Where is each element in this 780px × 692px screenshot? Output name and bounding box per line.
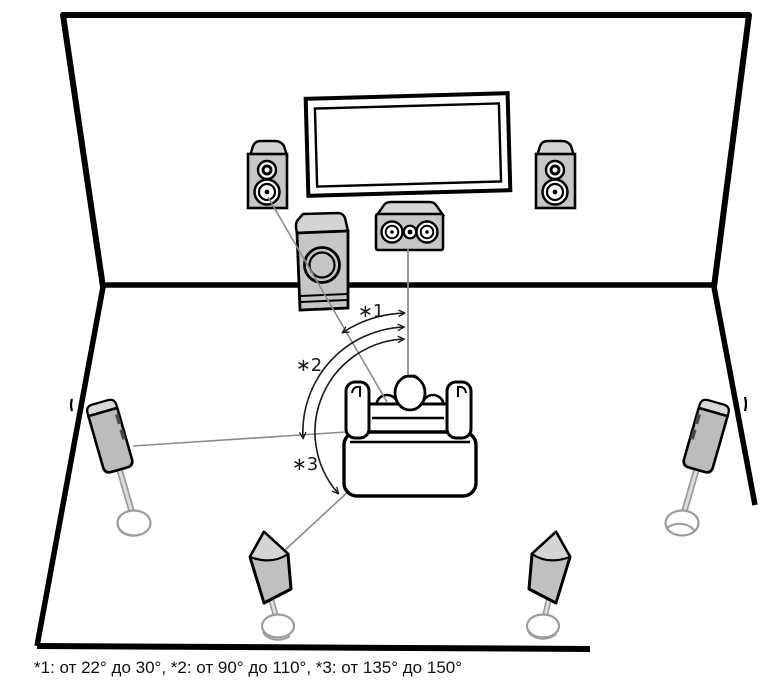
angle-label-1: ∗1 xyxy=(358,301,385,322)
subwoofer xyxy=(296,213,348,310)
floor-bottom-edge xyxy=(37,646,590,649)
stand-pole-highlight xyxy=(683,468,697,516)
surround-right-speaker xyxy=(666,398,731,535)
wall-tick-right xyxy=(745,397,746,411)
stand-base xyxy=(527,615,559,638)
center-speaker xyxy=(376,202,443,250)
stand-pole-highlight xyxy=(119,468,133,516)
wall-tick-left xyxy=(71,399,72,411)
tweeter-dome xyxy=(551,166,559,174)
stand-base xyxy=(262,615,294,638)
angle-label-2: ∗2 xyxy=(296,355,323,376)
rear-left-axis-line xyxy=(284,489,351,551)
right-driver-cap xyxy=(425,230,429,234)
diagram-canvas: ∗1 ∗2 ∗3 *1: от 22° до 30°, *2: от 90° д… xyxy=(0,0,780,692)
rear-right-speaker xyxy=(527,532,570,639)
caption: *1: от 22° до 30°, *2: от 90° до 110°, *… xyxy=(34,658,462,677)
woofer-cap xyxy=(553,190,558,195)
surround-left-axis-line xyxy=(133,432,346,446)
listener-head xyxy=(395,376,425,410)
center-tweeter-dome xyxy=(408,230,413,235)
speaker-placement-diagram: ∗1 ∗2 ∗3 *1: от 22° до 30°, *2: от 90° д… xyxy=(0,0,780,692)
woofer-cap xyxy=(265,190,270,195)
tv-screen xyxy=(315,103,501,186)
tv xyxy=(306,93,511,196)
sofa xyxy=(344,375,476,496)
tweeter-dome xyxy=(263,166,271,174)
angle-label-3: ∗3 xyxy=(292,454,319,475)
speaker-cabinet xyxy=(682,408,727,474)
surround-left-speaker xyxy=(86,398,151,535)
speaker-top xyxy=(250,532,288,560)
left-driver-cap xyxy=(390,230,394,234)
floor-left-edge xyxy=(37,287,103,646)
front-left-speaker xyxy=(248,141,287,208)
floor-right-edge xyxy=(714,287,755,505)
speaker-top xyxy=(532,532,570,560)
front-right-speaker xyxy=(536,141,575,208)
speaker-cabinet xyxy=(88,408,133,474)
sofa-armrest-left xyxy=(346,382,369,438)
